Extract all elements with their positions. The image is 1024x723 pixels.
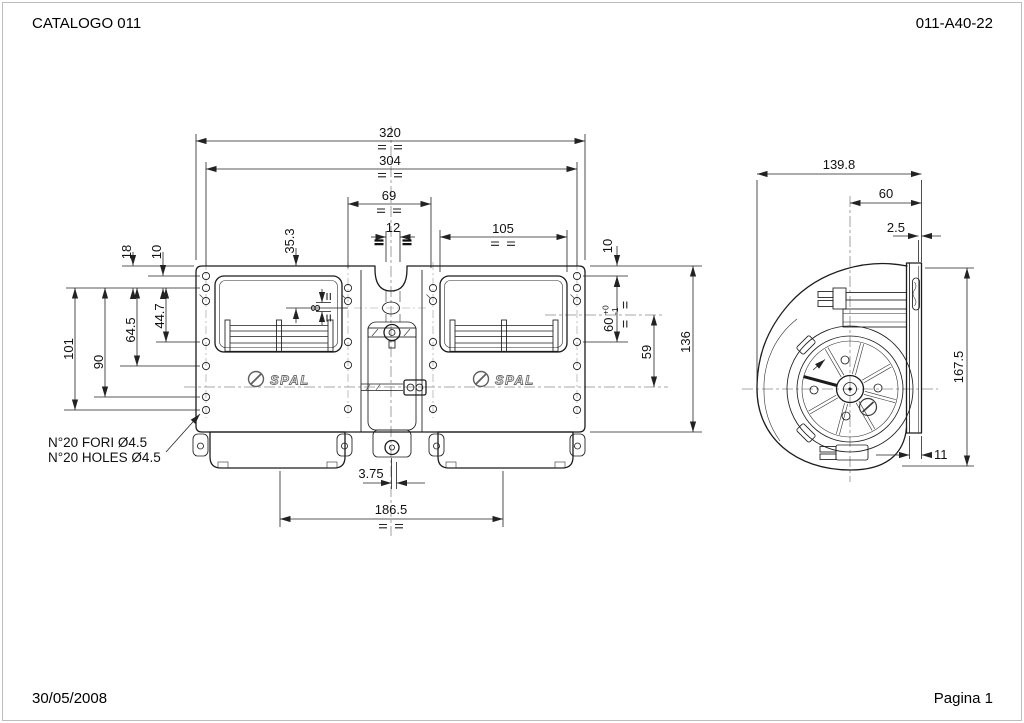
dim-136: 136 bbox=[678, 331, 693, 353]
spal-logo-left-text: SPAL bbox=[270, 373, 310, 388]
spal-logo-right: SPAL bbox=[474, 372, 535, 388]
dim-101: 101 bbox=[61, 338, 76, 360]
dim-90: 90 bbox=[91, 355, 106, 369]
svg-text:60: 60 bbox=[601, 318, 616, 332]
dim-35-3: 35.3 bbox=[282, 228, 297, 253]
center-bracket bbox=[361, 270, 426, 457]
holes-note-line2: N°20 HOLES Ø4.5 bbox=[48, 450, 161, 465]
drawing-code: 011-A40-22 bbox=[916, 15, 993, 32]
dim-105: 105 bbox=[492, 221, 514, 236]
dim-304: 304 bbox=[379, 153, 401, 168]
catalog-title: CATALOGO 011 bbox=[32, 15, 141, 32]
side-view-body bbox=[757, 263, 922, 470]
dim-139-8: 139.8 bbox=[823, 157, 856, 172]
dim-64-5: 64.5 bbox=[123, 317, 138, 342]
side-view: 139.8 60 2.5 167.5 11 bbox=[742, 157, 974, 482]
page-number: Pagina 1 bbox=[934, 690, 993, 707]
rotation-arrow-icon bbox=[813, 360, 825, 371]
dim-10-left: 10 bbox=[149, 245, 164, 259]
dim-60-side: 60 bbox=[879, 186, 893, 201]
dim-2-5: 2.5 bbox=[887, 220, 905, 235]
front-view-dimensions: 320 304 69 12 105 bbox=[48, 125, 702, 528]
dim-18: 18 bbox=[119, 245, 134, 259]
dim-10-right: 10 bbox=[600, 239, 615, 253]
dim-186-5: 186.5 bbox=[375, 502, 408, 517]
dim-59: 59 bbox=[639, 345, 654, 359]
front-view-body: SPAL SPAL bbox=[193, 266, 585, 468]
svg-text:-1: -1 bbox=[610, 307, 620, 315]
dim-11: 11 bbox=[934, 447, 948, 462]
svg-text:+0: +0 bbox=[601, 305, 611, 315]
spal-logo-left: SPAL bbox=[249, 372, 310, 388]
dim-44-7: 44.7 bbox=[152, 303, 167, 328]
date-label: 30/05/2008 bbox=[32, 690, 107, 707]
catalog-page: CATALOGO 011 011-A40-22 30/05/2008 Pagin… bbox=[0, 0, 1024, 723]
holes-note-line1: N°20 FORI Ø4.5 bbox=[48, 435, 147, 450]
front-view: SPAL SPAL 320 bbox=[48, 125, 702, 536]
dim-69: 69 bbox=[382, 188, 396, 203]
dim-320: 320 bbox=[379, 125, 401, 140]
dim-167-5: 167.5 bbox=[951, 351, 966, 384]
spal-logo-right-text: SPAL bbox=[495, 373, 535, 388]
motor-terminals bbox=[818, 288, 907, 460]
bottom-housings bbox=[193, 432, 585, 468]
dim-3-75: 3.75 bbox=[358, 466, 383, 481]
technical-drawing: SPAL SPAL 320 bbox=[0, 0, 1024, 723]
dim-12: 12 bbox=[386, 220, 400, 235]
side-view-dimensions: 139.8 60 2.5 167.5 11 bbox=[757, 157, 974, 466]
dim-8: 8 bbox=[308, 304, 323, 311]
side-view-centerlines bbox=[742, 196, 938, 482]
